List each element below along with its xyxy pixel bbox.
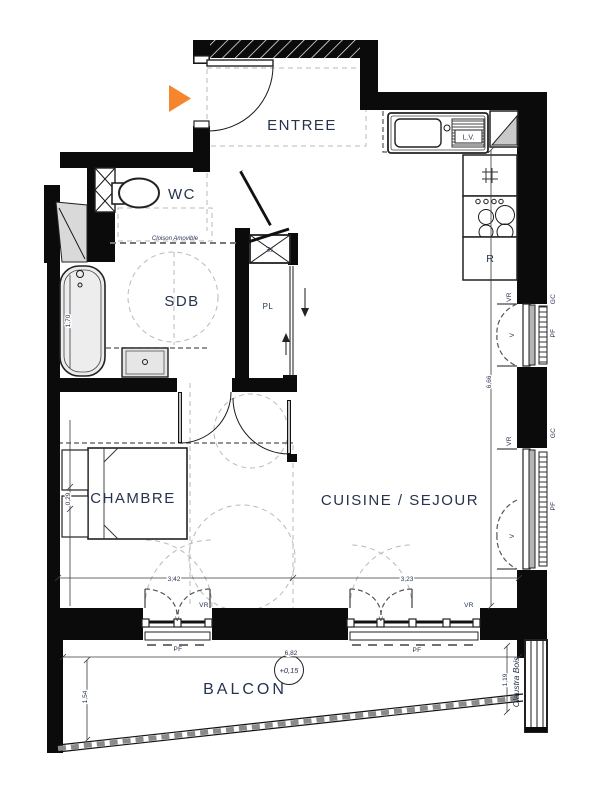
oven-cabinet xyxy=(463,155,517,196)
interior-doors xyxy=(180,392,297,462)
room-label-cuisine-sejour: CUISINE / SEJOUR xyxy=(321,492,479,509)
wc-door-leaf-core xyxy=(243,171,273,225)
dim-sejour-width: 3,23 xyxy=(401,576,414,583)
window-mullion xyxy=(142,619,149,627)
label-pf: PF xyxy=(550,502,557,511)
label-gc: GC xyxy=(550,294,557,304)
window-glazing xyxy=(529,305,535,365)
chambre-turning-circle xyxy=(189,505,295,611)
label-cloison-amovible: Cloison Amovible xyxy=(152,236,199,242)
wall-top-entry xyxy=(193,40,378,58)
room-label-entree: ENTREE xyxy=(267,117,337,134)
wall-hall-stub xyxy=(232,378,297,392)
wc-door xyxy=(241,171,273,226)
balcony-railing-top xyxy=(58,694,523,745)
label-vr: VR xyxy=(506,436,513,446)
wall-right-upper xyxy=(517,92,547,304)
label-vr: VR xyxy=(199,602,209,609)
window-mullion xyxy=(205,619,212,627)
label-v: V xyxy=(175,616,180,623)
casement-arc xyxy=(497,335,517,366)
window-right-1 xyxy=(497,304,547,367)
label-pf: PF xyxy=(413,647,422,654)
wall-te-stub-left xyxy=(235,228,250,244)
room-label-wc: WC xyxy=(168,186,196,203)
label-pf: PF xyxy=(550,329,557,338)
window-mullion xyxy=(473,619,480,627)
entry-door-jamb xyxy=(194,121,209,128)
wall-sdb-right xyxy=(235,242,249,382)
room-label-pl: PL xyxy=(263,302,274,311)
casement-arc xyxy=(497,304,517,335)
wall-bottom-left xyxy=(47,608,143,640)
window-swing-arc xyxy=(145,540,212,607)
arrow-down-head xyxy=(301,308,309,317)
dim-claustra-length: 1,19 xyxy=(502,673,509,686)
window-mullion xyxy=(443,619,450,627)
claustra-bois-screen xyxy=(525,640,547,732)
window-mullion xyxy=(347,619,354,627)
wall-left-upper xyxy=(44,185,60,263)
wc-door-leaf xyxy=(241,171,271,225)
wall-sdb-bottom xyxy=(55,378,177,392)
label-gc: GC xyxy=(550,428,557,438)
arrow-up-head xyxy=(282,333,290,342)
label-dishwasher: L.V. xyxy=(463,135,475,142)
label-v: V xyxy=(509,533,516,538)
entry-door-arc xyxy=(208,66,273,131)
label-v: V xyxy=(379,616,384,623)
casement-arc xyxy=(497,500,517,535)
window-sejour xyxy=(347,589,480,645)
label-vr: VR xyxy=(506,292,513,302)
guard-rail xyxy=(539,452,547,566)
balcony-railing-bottom xyxy=(58,701,523,752)
sejour-door-stop xyxy=(287,454,297,462)
entry-door-leaf xyxy=(207,60,273,66)
label-pf: PF xyxy=(174,646,183,653)
claustra-cap xyxy=(525,727,547,732)
toilet xyxy=(119,179,159,208)
room-label-balcon: BALCON xyxy=(203,681,287,698)
label-v: V xyxy=(509,332,516,337)
entry-arrow-icon xyxy=(169,85,191,112)
sdb-room xyxy=(60,266,168,377)
wall-wc-top xyxy=(60,152,210,168)
vanity-sink xyxy=(122,348,168,377)
pl-arrows xyxy=(282,288,309,355)
dim-chambre-width: 3,42 xyxy=(168,576,181,583)
window-glazing xyxy=(529,450,535,568)
wall-bottom-middle xyxy=(212,608,348,640)
entry-door xyxy=(169,56,273,131)
hall-turning-circle xyxy=(214,394,288,468)
room-label-sdb: SDB xyxy=(164,293,199,310)
wall-right-middle xyxy=(517,367,547,448)
window-swing-arc xyxy=(145,540,212,607)
dim-balcony-depth: 1,54 xyxy=(82,690,89,703)
window-mullion xyxy=(409,619,416,627)
nightstand xyxy=(62,450,88,490)
casement-arc xyxy=(497,535,517,569)
dim-balcony-length: 6,82 xyxy=(285,650,298,657)
wall-left-main xyxy=(47,263,60,608)
label-level: +0,15 xyxy=(280,666,300,675)
kitchen-sink-bowl xyxy=(395,119,441,147)
balcony-railing-hatch xyxy=(58,698,523,749)
sejour-door-arc xyxy=(233,398,289,454)
floor-plan-canvas: ENTREE WC SDB PL CHAMBRE CUISINE / SEJOU… xyxy=(0,0,608,800)
dim-facade-height: 6,66 xyxy=(486,375,493,388)
label-fridge: R xyxy=(486,253,494,265)
chambre-door-arc xyxy=(180,392,231,443)
label-claustra-bois: Claustra Bois xyxy=(511,656,521,707)
label-electrical-panel: TE xyxy=(266,245,274,251)
window-right-2 xyxy=(497,448,547,570)
floor-plan-page: ENTREE WC SDB PL CHAMBRE CUISINE / SEJOU… xyxy=(0,0,608,800)
entry-zone-outline xyxy=(207,68,366,146)
dim-bathtub-length: 1,70 xyxy=(65,314,72,327)
wall-bottom-right-corner xyxy=(480,608,547,640)
stove xyxy=(463,196,517,237)
label-vr: VR xyxy=(464,602,474,609)
kitchen xyxy=(388,111,518,280)
room-label-chambre: CHAMBRE xyxy=(90,490,176,507)
guard-rail xyxy=(539,306,547,364)
dim-bed-offset: 0,29 xyxy=(65,492,72,505)
